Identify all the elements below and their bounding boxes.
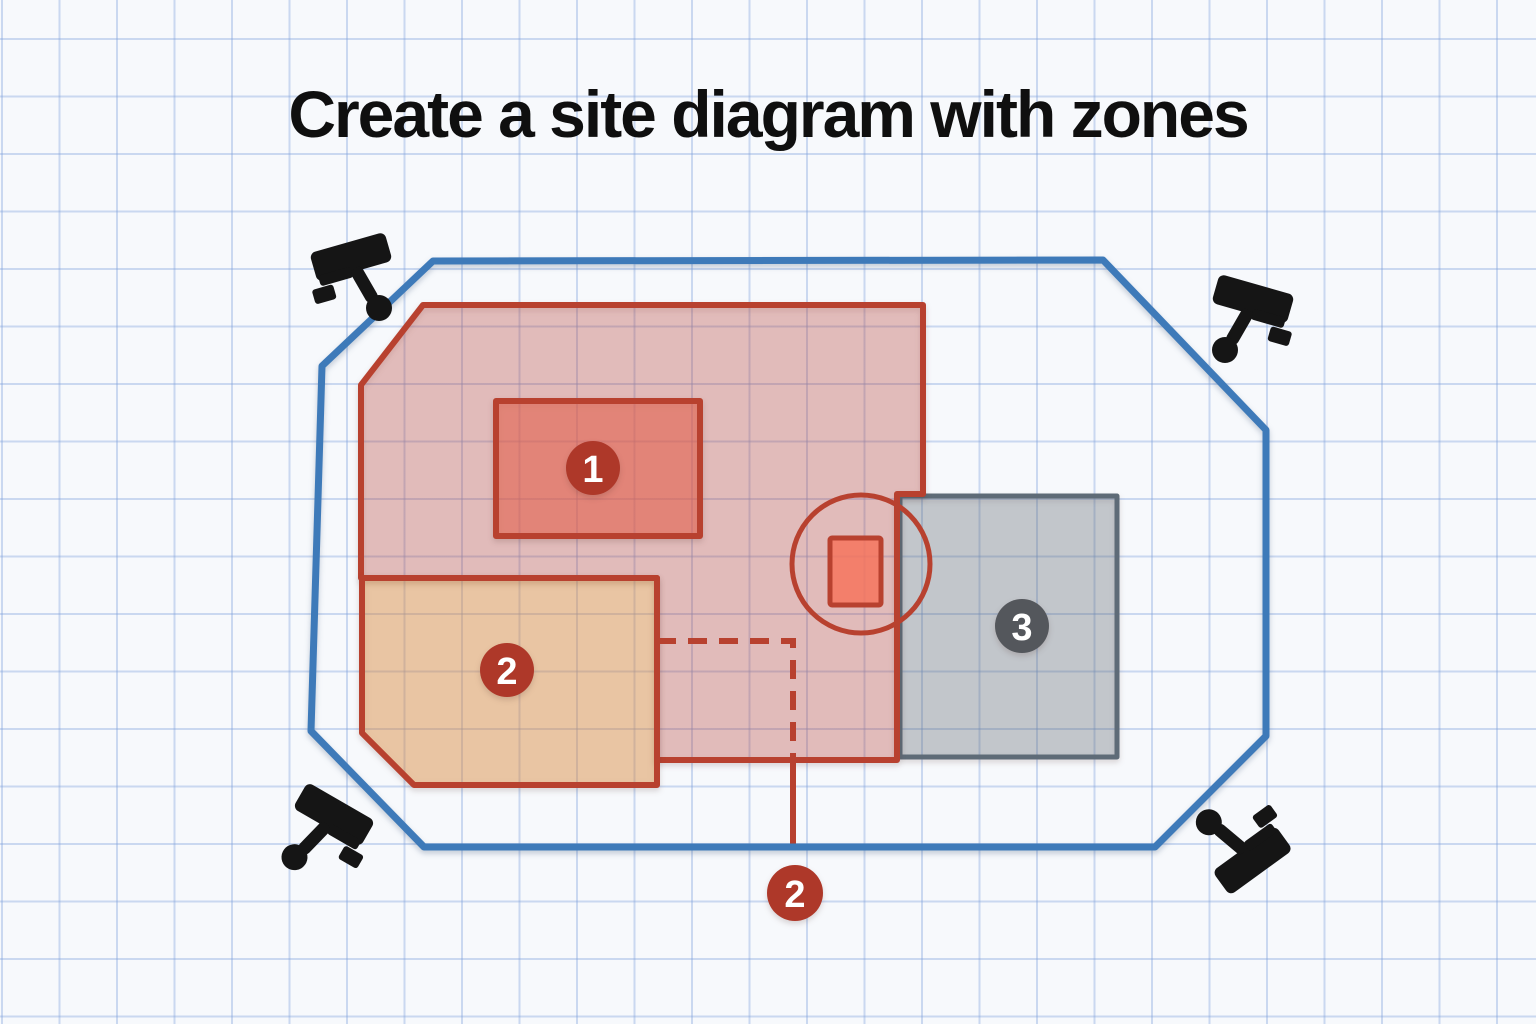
equipment-rect <box>830 538 881 605</box>
graph-paper-background: Create a site diagram with zones 1232 <box>0 0 1536 1024</box>
zone-marker-2-label: 2 <box>496 651 517 693</box>
cctv-camera-top-right <box>1206 274 1303 363</box>
cctv-camera-top-left <box>302 232 399 321</box>
zone-marker-2-callout-label: 2 <box>784 874 805 916</box>
zone-marker-3-label: 3 <box>1011 607 1032 649</box>
cctv-camera-icon <box>1206 274 1303 363</box>
site-diagram: 1232 <box>0 0 1536 1024</box>
cctv-camera-icon <box>302 232 399 321</box>
zone-marker-1-label: 1 <box>582 449 603 491</box>
